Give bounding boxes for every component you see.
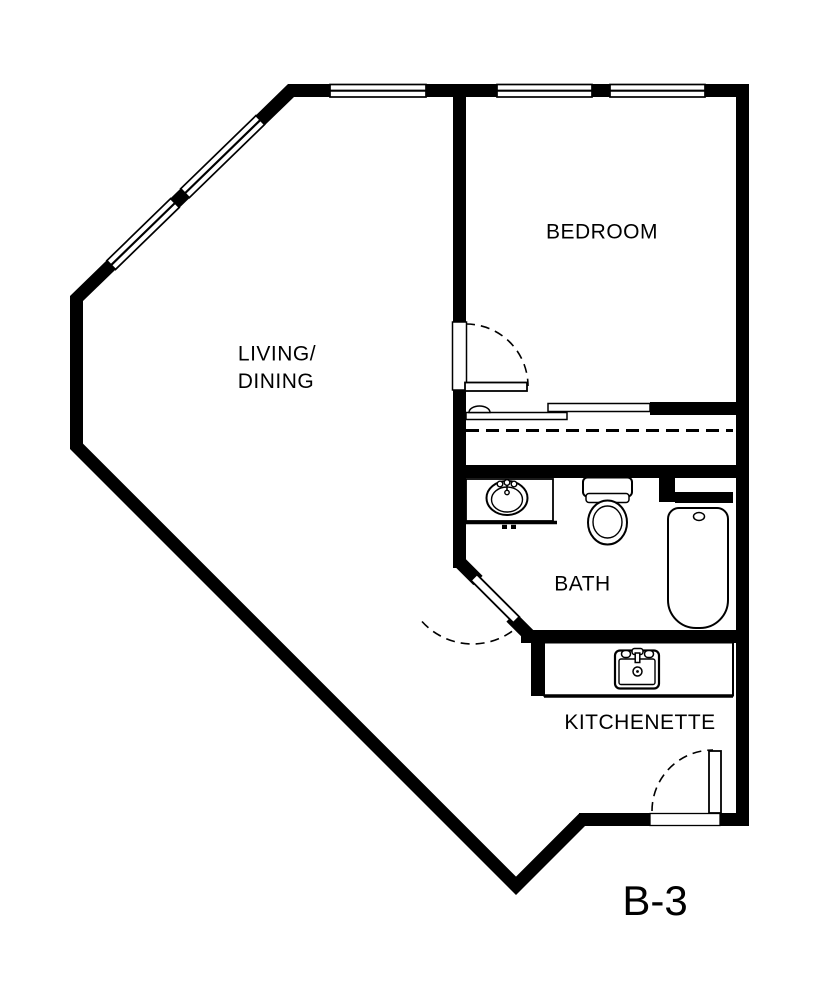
door-leaf — [709, 751, 721, 813]
diagonal-wall-windows — [107, 116, 265, 270]
door-jamb — [453, 322, 467, 390]
kitchen-sink — [615, 649, 659, 689]
bottom-wall-segment — [579, 813, 650, 826]
window-glazing — [185, 120, 260, 193]
bedroom-divider-wall — [453, 97, 466, 322]
closet-sliding-door — [466, 413, 567, 420]
faucet-handle — [497, 481, 503, 487]
tub-alcove-stub — [659, 478, 675, 502]
floor-plan-drawing: BEDROOM LIVING/ DINING BATH KITCHENETTE … — [0, 0, 818, 998]
floor-plan: BEDROOM LIVING/ DINING BATH KITCHENETTE … — [0, 0, 818, 998]
living-dining-label-line2: DINING — [238, 370, 315, 393]
right-wall — [736, 84, 749, 826]
kitchenette-label: KITCHENETTE — [564, 711, 715, 734]
faucet-handle — [511, 481, 517, 487]
faucet-handle — [645, 651, 654, 658]
top-wall-segment — [426, 84, 497, 97]
kitchen-sink-drain-dot — [636, 670, 639, 673]
door-leaf — [471, 574, 519, 622]
top-wall-windows — [330, 85, 705, 98]
bedroom-divider-wall — [453, 390, 466, 568]
bedroom-door — [453, 322, 529, 391]
closet-sliding-door — [548, 404, 650, 412]
bathtub-drain — [694, 513, 705, 521]
bedroom-label: BEDROOM — [546, 221, 658, 244]
door-threshold — [650, 814, 720, 826]
window-glazing — [111, 203, 175, 265]
faucet-drain — [505, 490, 509, 494]
bath-north-wall — [453, 465, 749, 478]
bathtub — [668, 508, 728, 628]
bathtub-outline — [668, 508, 728, 628]
closet-wall — [650, 402, 749, 415]
door-swing-arc — [422, 622, 518, 644]
faucet-handle — [622, 651, 631, 658]
bath-south-wall — [521, 630, 749, 643]
door-swing-arc — [466, 324, 528, 386]
top-wall-segment — [288, 84, 330, 97]
door-leaf — [465, 383, 527, 392]
entry-door — [650, 750, 721, 826]
living-dining-label-line1: LIVING/ — [238, 343, 316, 366]
faucet-spout — [504, 480, 510, 486]
vanity-knob — [511, 525, 516, 529]
bath-door — [422, 574, 519, 644]
faucet-spout-stem — [635, 653, 640, 663]
toilet — [583, 478, 632, 545]
top-wall-segment — [592, 84, 610, 97]
kitchenette-west-wall — [531, 643, 544, 696]
unit-label: B-3 — [622, 877, 687, 924]
bath-label: BATH — [554, 573, 610, 596]
vanity-knob — [502, 525, 507, 529]
bottom-wall-segment — [720, 813, 736, 826]
closet-door-pull — [469, 406, 490, 413]
vanity-sink — [464, 479, 557, 529]
door-swing-arc — [652, 750, 713, 811]
kitchenette-counter — [544, 643, 733, 697]
tub-head-wall — [675, 492, 733, 503]
